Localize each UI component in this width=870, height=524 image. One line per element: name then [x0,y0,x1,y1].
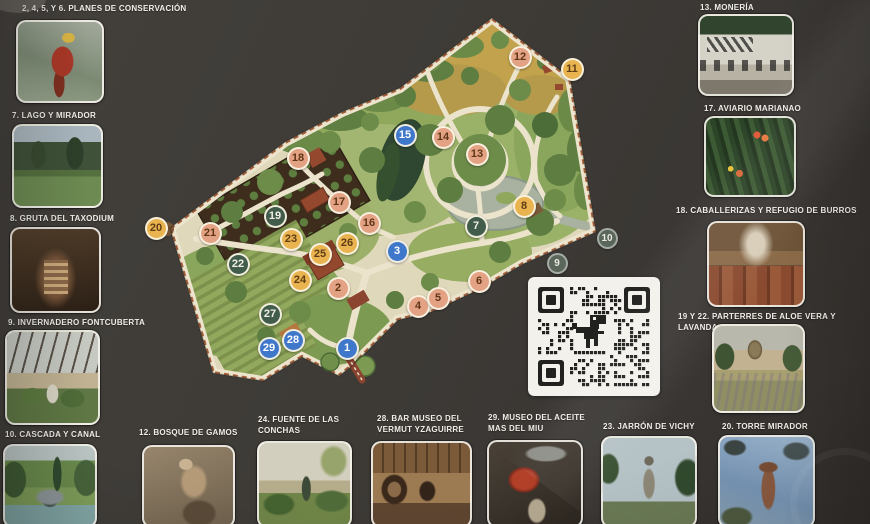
map-marker-5: 5 [427,287,450,310]
legend-photo-gruta [10,227,101,313]
legend-caption-torre: 20. TORRE MIRADOR [722,421,808,432]
map-marker-21: 21 [199,222,222,245]
legend-caption-moneria: 13. MONERÍA [700,2,754,13]
legend-caption-invernadero: 9. INVERNADERO FONTCUBERTA [8,317,145,328]
legend-photo-torre [718,435,815,524]
map-marker-25: 25 [309,243,332,266]
legend-caption-pheasant: 2, 4, 5, y 6. PLANES DE CONSERVACIÓN [22,3,186,14]
legend-photo-fuente [257,441,352,524]
map-marker-26: 26 [336,232,359,255]
map-marker-18: 18 [287,147,310,170]
map-marker-14: 14 [432,126,455,149]
legend-photo-bosque [142,445,235,524]
legend-caption-fuente: 24. FUENTE DE LAS CONCHAS [258,414,339,436]
map-marker-22: 22 [227,253,250,276]
legend-photo-lago [12,124,103,208]
map-marker-7: 7 [465,215,488,238]
map-marker-3: 3 [386,240,409,263]
park-info-board: 2, 4, 5, y 6. PLANES DE CONSERVACIÓN7. L… [0,0,870,524]
map-marker-12: 12 [509,46,532,69]
legend-photo-cascada [3,444,97,524]
map-marker-28: 28 [282,329,305,352]
legend-photo-moneria [698,14,794,96]
legend-photo-invernadero [5,330,100,425]
map-marker-15: 15 [394,124,417,147]
legend-photo-pheasant [16,20,104,103]
legend-caption-cascada: 10. CASCADA Y CANAL [5,429,100,440]
map-marker-24: 24 [289,269,312,292]
qr-code [528,277,660,396]
legend-caption-bosque: 12. BOSQUE DE GAMOS [139,427,238,438]
map-marker-8: 8 [513,195,536,218]
map-marker-1: 1 [336,337,359,360]
legend-caption-caballerizas: 18. CABALLERIZAS Y REFUGIO DE BURROS [676,205,857,216]
map-marker-11: 11 [561,58,584,81]
map-marker-19: 19 [264,205,287,228]
legend-caption-lago: 7. LAGO Y MIRADOR [12,110,96,121]
legend-caption-bar: 28. BAR MUSEO DEL VERMUT YZAGUIRRE [377,413,464,435]
legend-photo-jarron [601,436,697,524]
map-marker-20: 20 [145,217,168,240]
legend-photo-aviario [704,116,796,197]
legend-photo-aceite [487,440,583,524]
map-marker-9: 9 [547,253,568,274]
legend-caption-aviario: 17. AVIARIO MARIANAO [704,103,801,114]
legend-caption-aceite: 29. MUSEO DEL ACEITE MAS DEL MIU [488,412,585,434]
legend-caption-gruta: 8. GRUTA DEL TAXODIUM [10,213,114,224]
legend-photo-bar [371,441,472,524]
legend-photo-caballerizas [707,221,805,307]
map-marker-17: 17 [328,191,351,214]
map-marker-10: 10 [597,228,618,249]
legend-photo-parterres [712,324,805,413]
map-marker-6: 6 [468,270,491,293]
map-marker-27: 27 [259,303,282,326]
map-marker-23: 23 [280,228,303,251]
map-marker-16: 16 [358,212,381,235]
map-marker-29: 29 [258,337,281,360]
legend-caption-jarron: 23. JARRÓN DE VICHY [603,421,695,432]
map-marker-2: 2 [327,277,350,300]
map-marker-13: 13 [466,143,489,166]
